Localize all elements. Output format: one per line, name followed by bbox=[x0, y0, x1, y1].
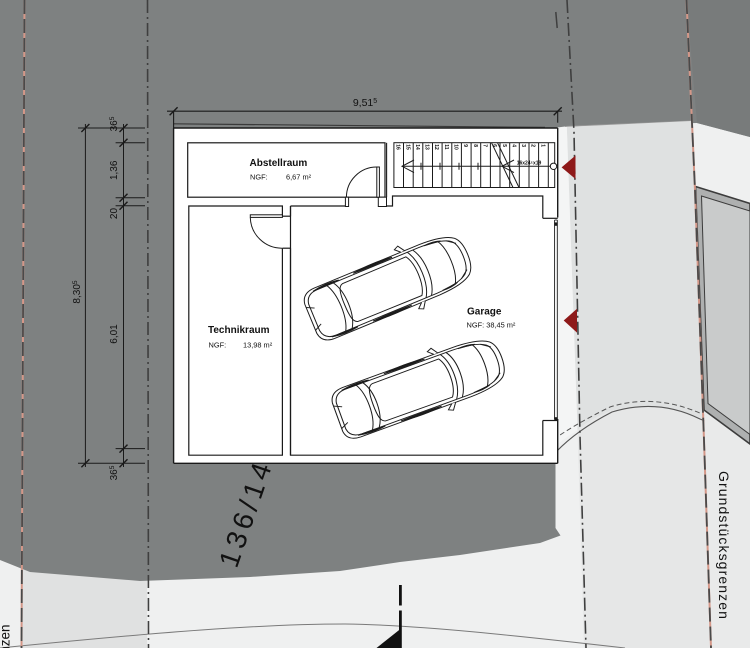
svg-text:Abstellraum: Abstellraum bbox=[250, 158, 308, 169]
svg-text:Grundstücksgrenzen: Grundstücksgrenzen bbox=[716, 471, 732, 620]
svg-text:16: 16 bbox=[395, 144, 401, 150]
svg-text:16x24⁵x19: 16x24⁵x19 bbox=[517, 161, 542, 167]
svg-text:Garage: Garage bbox=[467, 307, 502, 318]
svg-text:8: 8 bbox=[472, 144, 478, 147]
svg-text:13,98 m²: 13,98 m² bbox=[243, 341, 273, 350]
svg-text:12: 12 bbox=[433, 144, 439, 150]
svg-text:4: 4 bbox=[510, 144, 516, 147]
svg-text:10: 10 bbox=[453, 144, 459, 150]
svg-text:6,01: 6,01 bbox=[109, 324, 120, 344]
svg-text:6,67 m²: 6,67 m² bbox=[286, 172, 312, 181]
svg-text:11: 11 bbox=[443, 144, 449, 150]
svg-text:15: 15 bbox=[404, 144, 410, 150]
svg-text:NGF: 38,45 m²: NGF: 38,45 m² bbox=[467, 321, 516, 330]
svg-text:20: 20 bbox=[109, 208, 120, 220]
svg-text:Grundstücksgrenzen: Grundstücksgrenzen bbox=[0, 624, 13, 648]
svg-text:3: 3 bbox=[520, 144, 526, 147]
svg-text:NGF:: NGF: bbox=[250, 172, 268, 181]
svg-text:1: 1 bbox=[539, 144, 545, 147]
svg-text:13: 13 bbox=[424, 144, 430, 150]
svg-text:14: 14 bbox=[414, 144, 420, 150]
svg-text:5: 5 bbox=[501, 144, 507, 147]
svg-text:9: 9 bbox=[462, 144, 468, 147]
svg-text:1,36: 1,36 bbox=[109, 160, 120, 180]
svg-text:2: 2 bbox=[530, 144, 536, 147]
svg-text:NGF:: NGF: bbox=[209, 341, 227, 350]
svg-text:6: 6 bbox=[491, 144, 497, 147]
svg-text:7: 7 bbox=[482, 144, 488, 147]
svg-text:Technikraum: Technikraum bbox=[208, 325, 270, 336]
